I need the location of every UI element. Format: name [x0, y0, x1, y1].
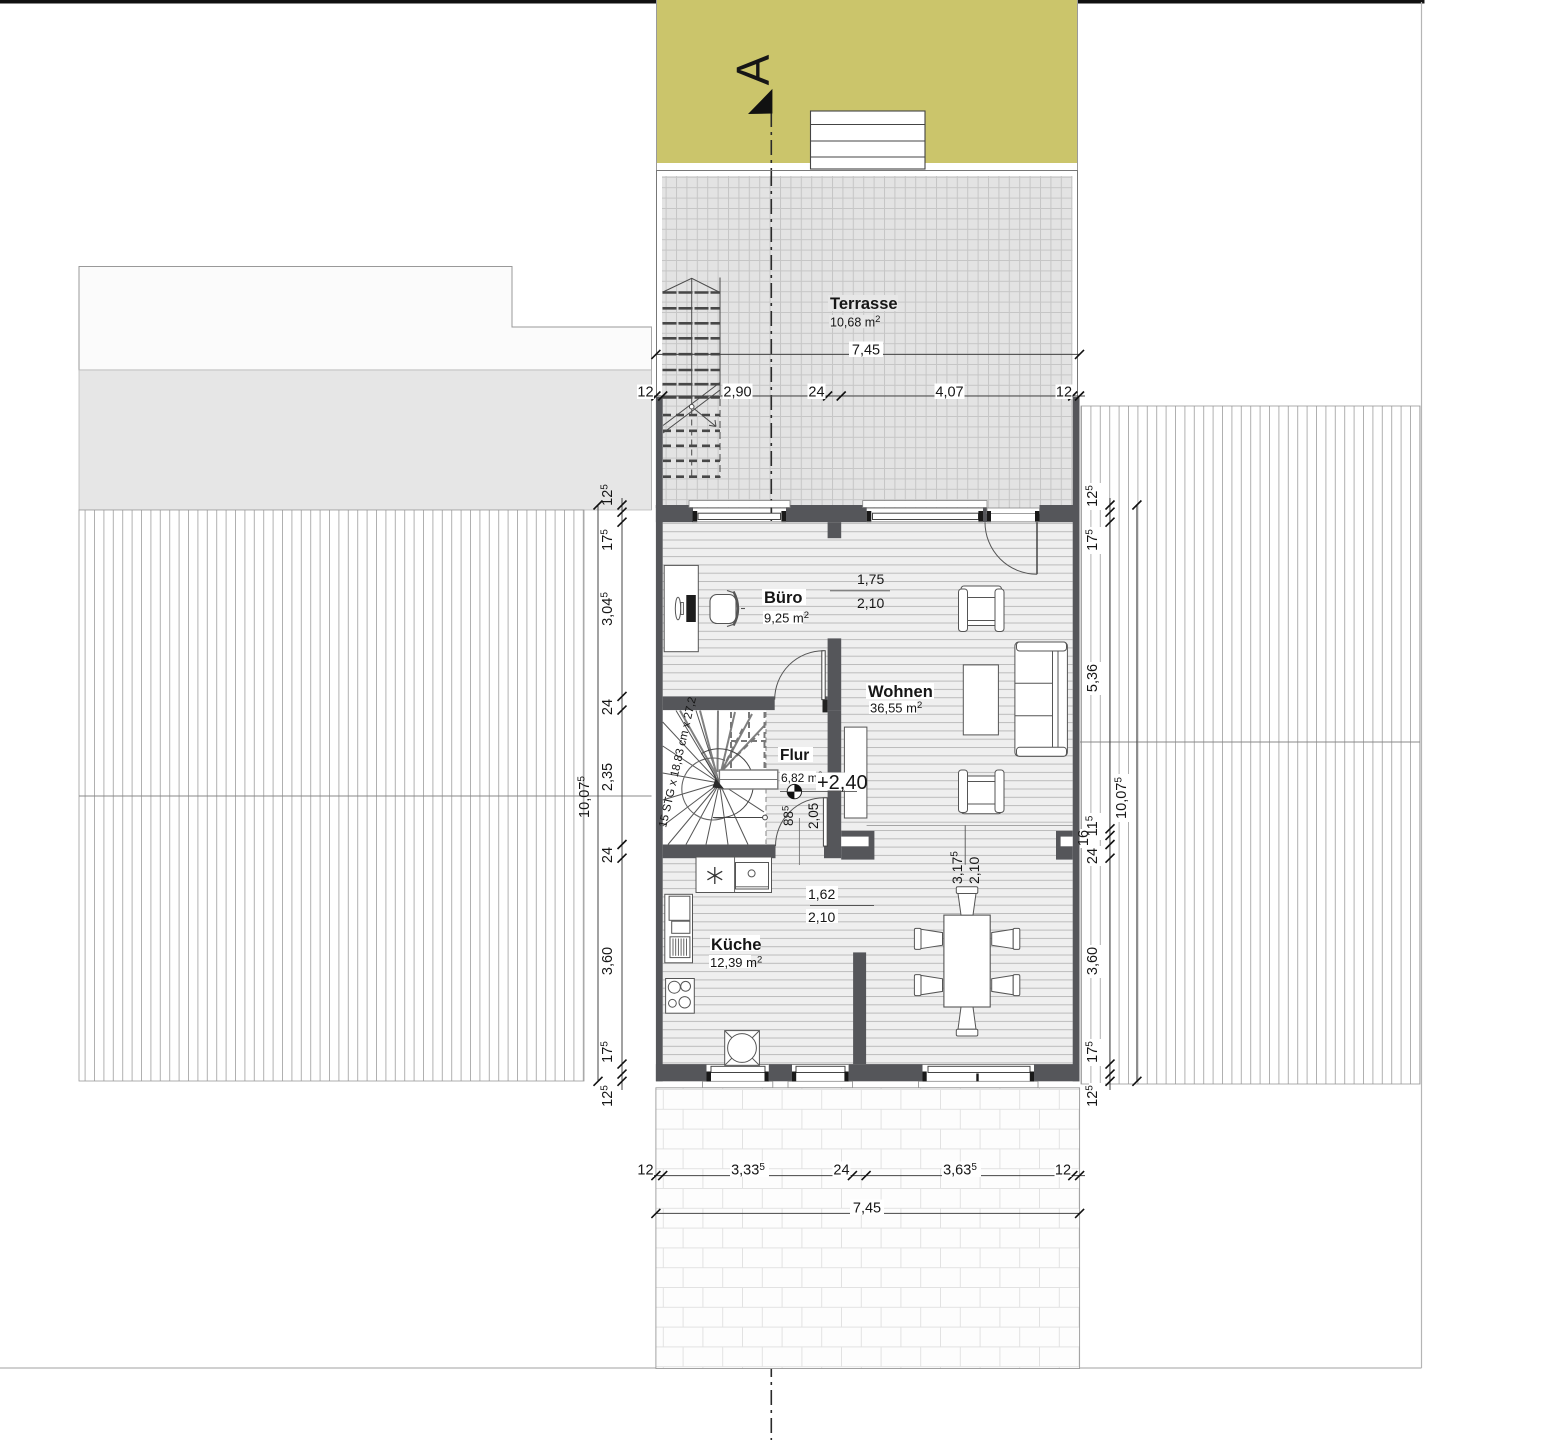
svg-text:12,39 m2: 12,39 m2	[710, 955, 762, 971]
svg-text:2,05: 2,05	[806, 803, 821, 829]
svg-text:Terrasse: Terrasse	[830, 295, 898, 313]
svg-text:2,10: 2,10	[857, 595, 884, 611]
svg-text:2,35: 2,35	[600, 763, 616, 791]
svg-text:12: 12	[1056, 385, 1072, 401]
svg-text:2,10: 2,10	[966, 857, 982, 884]
svg-text:4,07: 4,07	[935, 385, 963, 401]
svg-text:1,75: 1,75	[857, 571, 884, 587]
svg-text:16: 16	[1076, 830, 1092, 846]
svg-text:2,90: 2,90	[723, 385, 751, 401]
svg-text:12: 12	[1055, 1163, 1071, 1179]
svg-text:5,36: 5,36	[1085, 664, 1101, 692]
svg-text:7,45: 7,45	[852, 343, 880, 359]
svg-text:24: 24	[808, 385, 824, 401]
svg-text:3,60: 3,60	[600, 947, 616, 975]
svg-text:Büro: Büro	[764, 589, 803, 607]
svg-text:10,075: 10,075	[577, 776, 594, 818]
svg-text:9,25 m2: 9,25 m2	[764, 610, 809, 626]
svg-text:A: A	[727, 54, 779, 85]
svg-text:7,45: 7,45	[853, 1201, 881, 1217]
svg-text:10,68 m2: 10,68 m2	[830, 314, 880, 330]
svg-text:1,62: 1,62	[808, 886, 835, 902]
svg-text:3,60: 3,60	[1085, 947, 1101, 975]
svg-text:24: 24	[600, 847, 616, 863]
svg-text:10,075: 10,075	[1114, 777, 1131, 819]
svg-text:24: 24	[1085, 848, 1101, 864]
svg-text:24: 24	[833, 1163, 849, 1179]
svg-text:12: 12	[637, 385, 653, 401]
svg-text:36,55 m2: 36,55 m2	[870, 700, 922, 716]
svg-text:24: 24	[600, 699, 616, 715]
svg-text:Flur: Flur	[780, 747, 809, 764]
svg-text:12: 12	[637, 1163, 653, 1179]
svg-text:+2,40: +2,40	[817, 772, 868, 794]
svg-text:Wohnen: Wohnen	[868, 683, 933, 701]
svg-text:Küche: Küche	[711, 936, 761, 954]
svg-text:2,10: 2,10	[808, 909, 835, 925]
